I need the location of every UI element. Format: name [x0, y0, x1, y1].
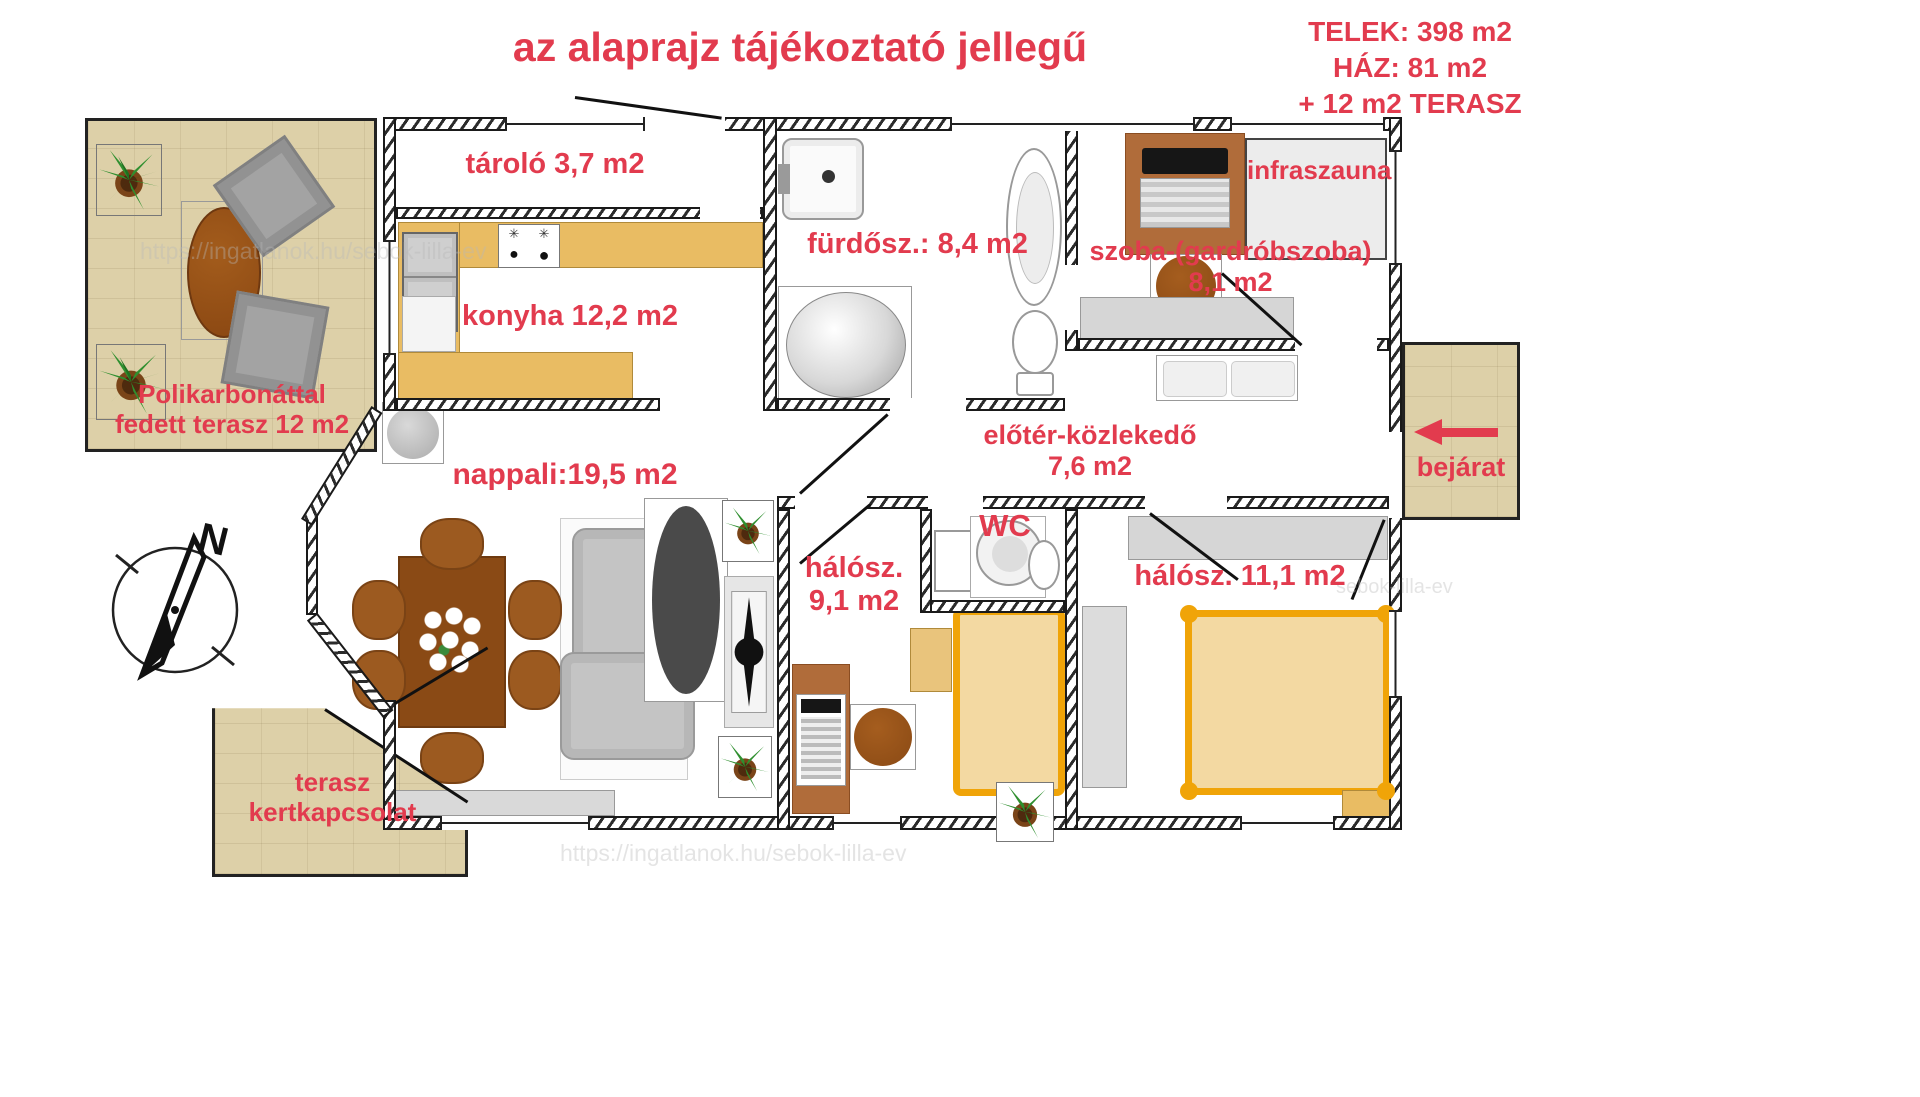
entrance-arrow-head: [1414, 419, 1442, 445]
laptop-screen: [1142, 148, 1228, 174]
room-label-infrasauna: infraszauna: [1247, 156, 1385, 186]
window: [440, 816, 590, 830]
potted-plant-icon: [96, 144, 162, 216]
toilet-bowl: [1012, 310, 1058, 374]
dining-chair: [508, 650, 562, 710]
room-label-hallway: előtér-közlekedő 7,6 m2: [930, 420, 1250, 482]
watermark: https://ingatlanok.hu/sebok-lilla-ev: [140, 238, 486, 265]
laptop-keyboard: [801, 717, 841, 779]
wall: [1065, 509, 1078, 830]
room-label-kitchen: konyha 12,2 m2: [440, 300, 700, 333]
house-size: HÁZ: 81 m2: [1265, 50, 1555, 86]
shower-faucet-icon: [778, 164, 790, 194]
terrace-size: + 12 m2 TERASZ: [1265, 86, 1555, 122]
door-swing: [799, 413, 889, 494]
room-label-garden-terrace: terasz kertkapcsolat: [220, 768, 445, 828]
window: [950, 117, 1195, 131]
laptop-screen: [801, 699, 841, 713]
floor-plan: az alaprajz tájékoztató jellegű TELEK: 3…: [0, 0, 1920, 1097]
room-label-bedroom-large: hálósz. 11,1 m2: [1095, 560, 1385, 593]
wall: [396, 398, 660, 411]
compass-rose: N: [100, 505, 255, 705]
compass-north-label: N: [194, 515, 233, 565]
door-opening: [890, 398, 966, 411]
watermark: https://ingatlanok.hu/sebok-lilla-ev: [560, 840, 906, 867]
window: [832, 816, 902, 830]
room-label-living-room: nappali:19,5 m2: [430, 458, 700, 493]
door-opening: [1065, 265, 1078, 330]
wall: [920, 600, 1065, 613]
shower-drain: [822, 170, 835, 183]
door-opening: [795, 496, 867, 509]
desk-chair: [854, 708, 912, 766]
potted-plant-icon: [718, 736, 772, 798]
door-opening: [1295, 338, 1377, 351]
page-title: az alaprajz tájékoztató jellegű: [400, 24, 1200, 71]
burner-icon: ✳: [509, 226, 520, 242]
laptop: [796, 694, 846, 786]
wall: [763, 117, 777, 411]
dining-chair: [352, 580, 406, 640]
wall: [306, 513, 318, 615]
bed-post: [1377, 782, 1395, 800]
wardrobe: [1128, 516, 1388, 560]
entrance-arrow-shaft: [1440, 428, 1498, 437]
door-opening: [700, 207, 760, 219]
bench-cushion: [1163, 361, 1227, 397]
stove: ✳✳ ● ●: [498, 224, 560, 268]
room-label-wc: WC: [950, 508, 1060, 544]
dining-chair: [420, 518, 484, 570]
burner-icon: ●: [509, 246, 519, 264]
nightstand: [910, 628, 952, 692]
potted-plant-icon: [996, 782, 1054, 842]
window: [505, 117, 645, 131]
bed-post: [1180, 782, 1198, 800]
wardrobe: [1080, 297, 1294, 341]
round-stool: [387, 407, 439, 459]
bed-double: [1185, 610, 1390, 795]
wc-small-sink: [1028, 540, 1060, 590]
door-opening: [1145, 496, 1227, 509]
bathtub: [786, 292, 906, 398]
decor-cabinet: [724, 576, 774, 728]
large-plant-top-view: [652, 506, 720, 694]
bench: [1156, 355, 1298, 401]
burner-icon: ●: [539, 245, 550, 266]
toilet-tank: [1016, 372, 1054, 396]
room-label-bathroom: fürdősz.: 8,4 m2: [790, 228, 1045, 261]
window: [1389, 610, 1402, 698]
door-opening: [643, 117, 725, 131]
wardrobe-tall: [1082, 606, 1127, 788]
room-label-entrance: bejárat: [1406, 452, 1516, 483]
laptop-keyboard: [1140, 178, 1230, 228]
room-label-bedroom-small: hálósz. 9,1 m2: [788, 552, 920, 619]
plot-size: TELEK: 398 m2: [1265, 14, 1555, 50]
bed-post: [1180, 605, 1198, 623]
door-opening: [1389, 432, 1402, 518]
wall: [920, 509, 932, 613]
potted-plant-icon: [722, 500, 774, 562]
plot-info: TELEK: 398 m2 HÁZ: 81 m2 + 12 m2 TERASZ: [1265, 14, 1555, 122]
bench-cushion: [1231, 361, 1295, 397]
room-label-walkin-room: szoba-(gardróbszoba) 8,1 m2: [1078, 236, 1383, 298]
bed-single: [953, 608, 1065, 796]
dining-chair: [508, 580, 562, 640]
burner-icon: ✳: [539, 226, 550, 242]
window: [1240, 816, 1335, 830]
room-label-storage: tároló 3,7 m2: [420, 148, 690, 181]
room-label-covered-terrace: Polikarbonáttal fedett terasz 12 m2: [88, 380, 376, 440]
